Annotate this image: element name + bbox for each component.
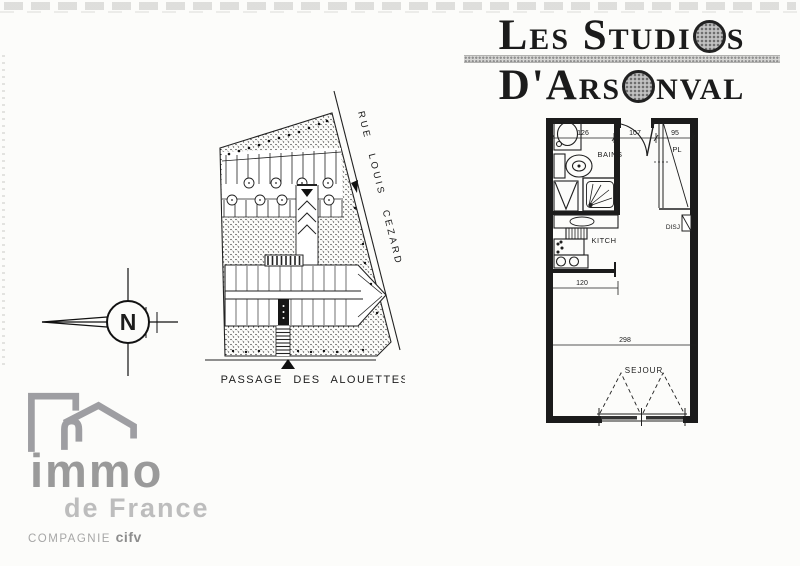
title-line1-post: s <box>727 12 746 59</box>
rooftop-block <box>265 255 303 266</box>
shower <box>583 178 617 211</box>
room-labels: BAINS PL DISJ KITCH SEJOUR <box>592 145 682 375</box>
compass-rose: N <box>38 266 190 378</box>
room-label-bains: BAINS <box>597 150 622 159</box>
scan-noise-left <box>2 55 5 365</box>
stove-burners <box>554 255 588 268</box>
toilet <box>554 154 592 178</box>
room-label-pl: PL <box>672 145 681 154</box>
sejour-window <box>597 373 687 426</box>
room-label-sejour: SEJOUR <box>625 366 663 375</box>
halftone-o-icon: O <box>622 70 655 103</box>
dim-closet: 95 <box>671 130 679 137</box>
entrance-walkway <box>276 326 290 356</box>
logo-company: COMPAGNIE cifv <box>28 529 228 545</box>
title-line-2: D'ArsOnval <box>462 64 782 108</box>
title-line2-pre: D'Ars <box>499 62 621 109</box>
title-line-1: Les StudiOs <box>462 14 782 58</box>
kitchen-sink <box>554 215 618 228</box>
logo-region: de France <box>64 494 228 522</box>
entrance-door <box>621 122 654 156</box>
dim-entry: 107 <box>629 130 641 137</box>
room-label-kitch: KITCH <box>592 236 617 245</box>
logo-company-name: cifv <box>116 529 142 545</box>
scanned-page: Les StudiOs D'ArsOnval <box>0 0 800 566</box>
logo-brand: immo <box>30 448 228 494</box>
dim-bains: 126 <box>577 130 589 137</box>
water-heater <box>554 181 578 211</box>
agency-logo: immo de France COMPAGNIE cifv <box>18 390 228 545</box>
draining-board <box>566 228 587 239</box>
title-block: Les StudiOs D'ArsOnval <box>462 14 782 108</box>
passage-des-alouettes: PASSAGE DES ALOUETTES <box>205 359 405 386</box>
halftone-o-icon: O <box>693 20 726 53</box>
floor-plan: 126 107 95 120 298 BAINS PL DISJ KITCH S… <box>530 105 715 435</box>
breaker-box <box>682 215 691 231</box>
north-label: N <box>120 309 137 335</box>
binding-edge <box>4 2 796 10</box>
site-plan: RUE LOUIS CEZARD PASSAGE DES ALOUETTES <box>205 88 405 403</box>
title-line2-post: nval <box>656 62 745 109</box>
dim-sejour: 298 <box>619 337 631 344</box>
kitchen-counter <box>554 239 584 255</box>
logo-company-prefix: COMPAGNIE <box>28 533 111 545</box>
passage-label: PASSAGE DES ALOUETTES <box>221 374 405 386</box>
room-label-disj: DISJ <box>666 224 680 231</box>
dim-kitchen: 120 <box>576 280 588 287</box>
driveway-ramp <box>296 185 318 265</box>
title-line1-pre: Les Studi <box>499 12 692 59</box>
